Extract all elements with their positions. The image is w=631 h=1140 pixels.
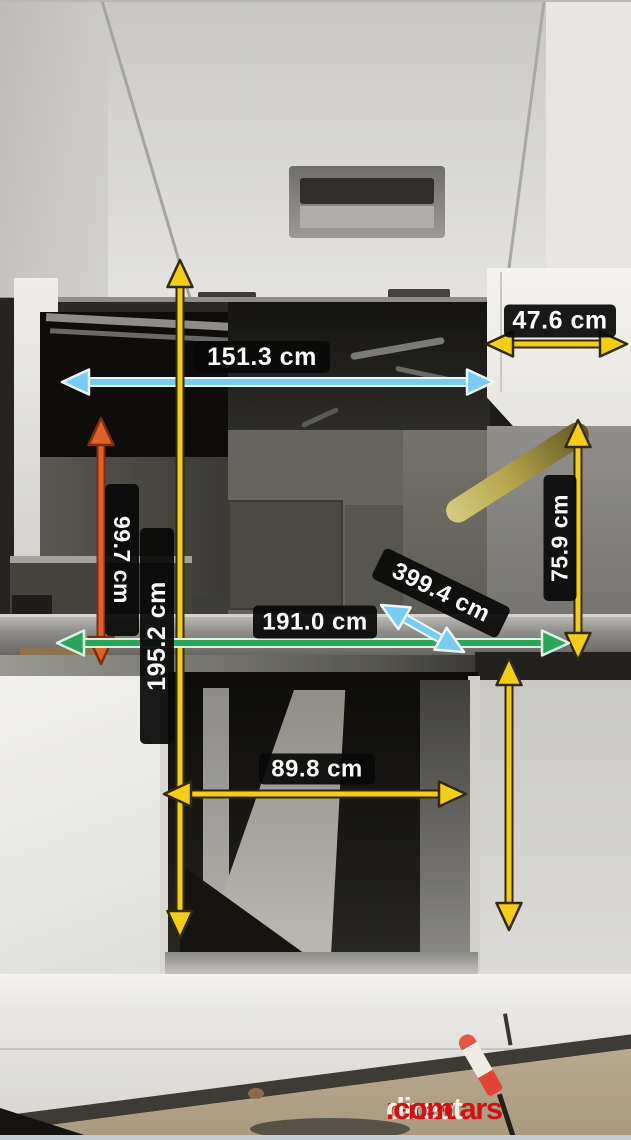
- back-wall-door: [228, 500, 343, 610]
- image-edge-bottom: [0, 1135, 631, 1140]
- liftgate-left-panel: [0, 0, 108, 302]
- opening-inner-wall-right: [420, 680, 470, 960]
- opening-frame-left: [160, 676, 168, 972]
- photo-race-transporter-rear: 47.6 cm151.3 cm99.7 cm195.2 cm75.9 cm191…: [0, 0, 631, 1140]
- ground-spot: [248, 1088, 264, 1099]
- image-edge-top: [0, 0, 631, 2]
- liftgate-handle-plate: [300, 206, 434, 228]
- watermark-dotcom: .com: [386, 1091, 452, 1127]
- back-wall-panel: [345, 505, 403, 607]
- opening-bottom-sill: [165, 952, 478, 974]
- interior-ceiling: [228, 302, 490, 434]
- right-white-cabinet: [487, 268, 631, 426]
- back-wall-right-section: [403, 430, 490, 625]
- liftgate-right-panel: [546, 0, 631, 302]
- lower-right-panel: [478, 680, 631, 975]
- liftgate-handle-slot: [300, 178, 434, 204]
- lower-left-panel: [0, 676, 165, 976]
- bench-rail: [10, 556, 192, 563]
- bumper-sill: [0, 974, 631, 1014]
- lower-right-shadow: [475, 652, 631, 682]
- right-cabinet-seam: [500, 272, 502, 392]
